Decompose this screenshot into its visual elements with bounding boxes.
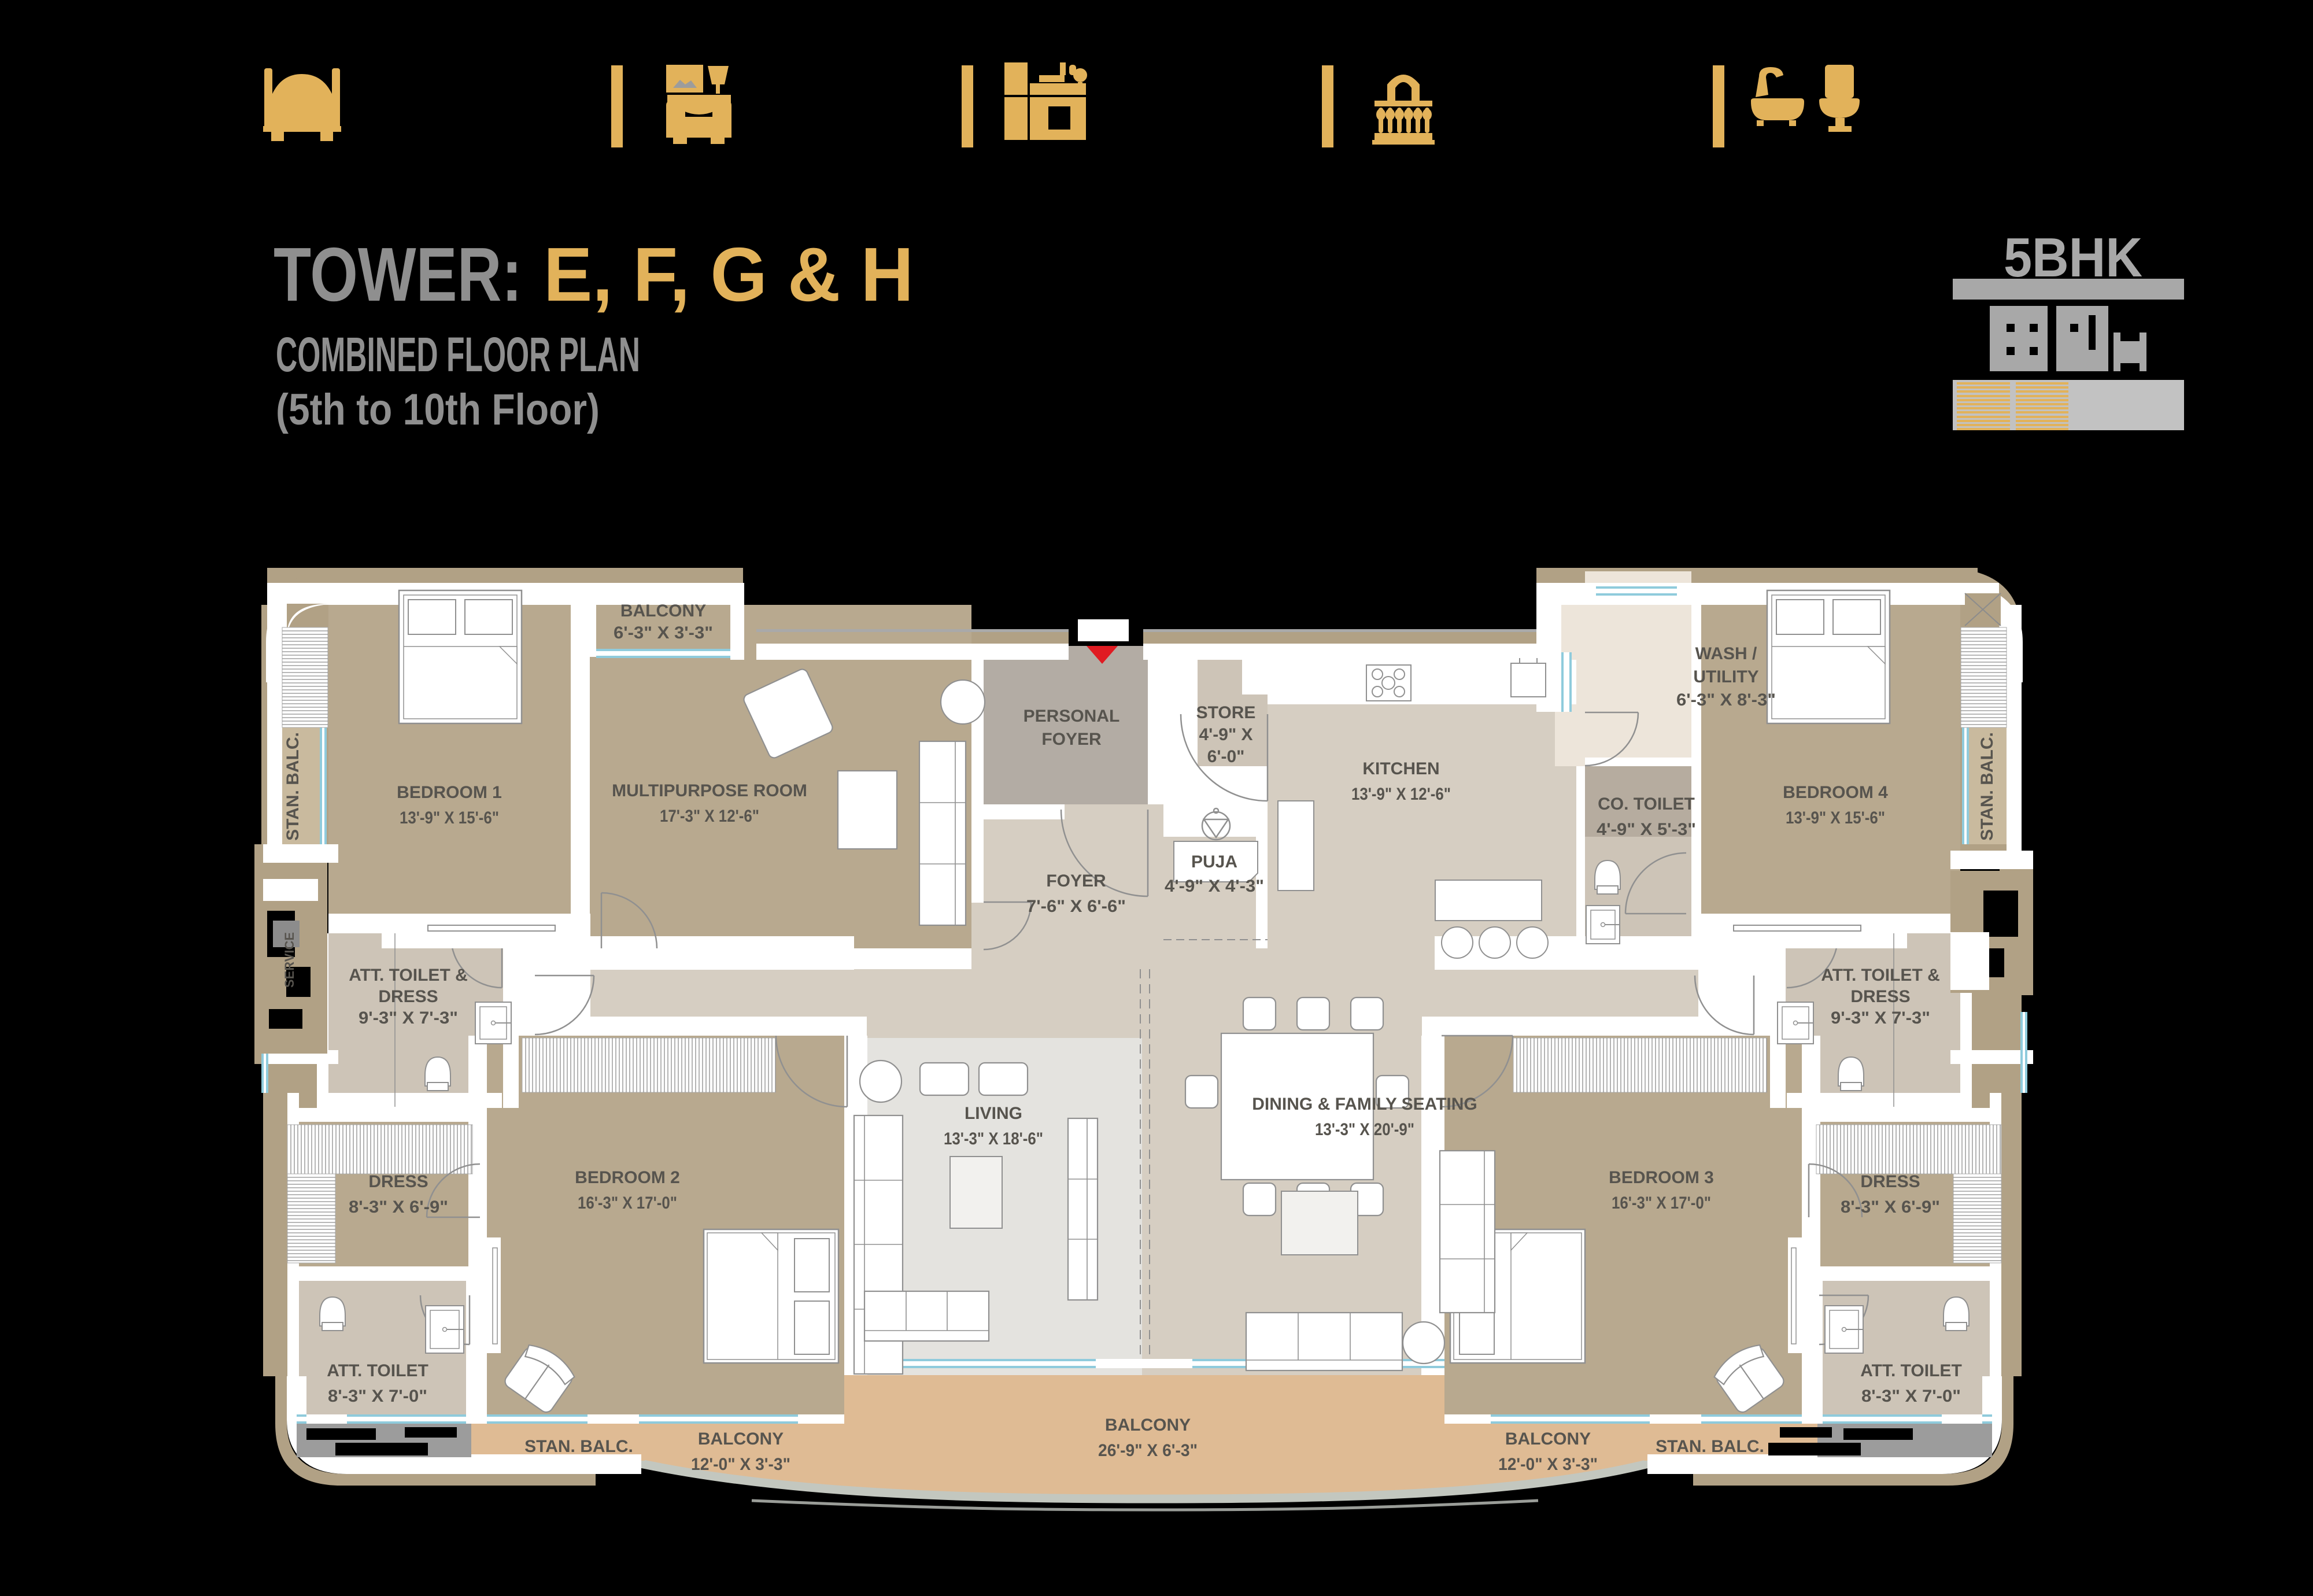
svg-text:COMBINED FLOOR PLAN: COMBINED FLOOR PLAN — [276, 327, 640, 382]
svg-text:DRESS: DRESS — [378, 987, 438, 1006]
svg-text:13'-9" X 12'-6": 13'-9" X 12'-6" — [1351, 785, 1451, 804]
svg-text:6'-3" X 8'-3": 6'-3" X 8'-3" — [1676, 690, 1776, 710]
svg-text:9'-3" X 7'-3": 9'-3" X 7'-3" — [359, 1008, 458, 1028]
svg-text:BALCONY: BALCONY — [620, 601, 706, 620]
svg-text:PERSONAL: PERSONAL — [1024, 707, 1120, 726]
svg-text:STAN. BALC.: STAN. BALC. — [283, 732, 302, 841]
svg-text:8'-3" X 6'-9": 8'-3" X 6'-9" — [1841, 1198, 1940, 1217]
svg-text:BEDROOM 2: BEDROOM 2 — [575, 1168, 680, 1187]
svg-text:12'-0" X 3'-3": 12'-0" X 3'-3" — [1498, 1455, 1598, 1474]
svg-text:13'-3" X 20'-9": 13'-3" X 20'-9" — [1315, 1120, 1414, 1139]
svg-text:STAN. BALC.: STAN. BALC. — [1978, 732, 1997, 841]
svg-text:12'-0" X 3'-3": 12'-0" X 3'-3" — [691, 1455, 790, 1474]
svg-text:4'-9" X 4'-3": 4'-9" X 4'-3" — [1165, 877, 1264, 896]
svg-text:BALCONY: BALCONY — [1505, 1429, 1591, 1449]
svg-text:BEDROOM 1: BEDROOM 1 — [397, 783, 502, 802]
svg-text:UTILITY: UTILITY — [1693, 667, 1758, 686]
svg-text:CO. TOILET: CO. TOILET — [1598, 795, 1695, 814]
svg-text:PUJA: PUJA — [1191, 852, 1237, 871]
svg-text:FOYER: FOYER — [1046, 871, 1106, 891]
svg-text:7'-6" X 6'-6": 7'-6" X 6'-6" — [1026, 897, 1126, 916]
svg-text:8'-3" X 6'-9": 8'-3" X 6'-9" — [349, 1198, 448, 1217]
svg-text:8'-3" X 7'-0": 8'-3" X 7'-0" — [1861, 1387, 1961, 1406]
svg-text:BEDROOM 4: BEDROOM 4 — [1783, 783, 1888, 802]
svg-text:13'-3" X 18'-6": 13'-3" X 18'-6" — [944, 1129, 1043, 1148]
svg-text:13'-9" X 15'-6": 13'-9" X 15'-6" — [1786, 808, 1885, 827]
svg-text:WASH /: WASH / — [1695, 644, 1757, 663]
svg-text:ATT. TOILET &: ATT. TOILET & — [349, 966, 468, 985]
svg-text:STAN. BALC.: STAN. BALC. — [1656, 1437, 1764, 1456]
svg-text:E, F, G & H: E, F, G & H — [544, 232, 914, 317]
svg-text:(5th to 10th Floor): (5th to 10th Floor) — [276, 385, 600, 434]
svg-text:13'-9" X 15'-6": 13'-9" X 15'-6" — [400, 808, 499, 827]
svg-text:16'-3" X 17'-0": 16'-3" X 17'-0" — [578, 1194, 677, 1213]
svg-text:26'-9" X 6'-3": 26'-9" X 6'-3" — [1098, 1441, 1198, 1460]
svg-text:6'-3" X 3'-3": 6'-3" X 3'-3" — [614, 623, 713, 642]
svg-text:16'-3" X 17'-0": 16'-3" X 17'-0" — [1612, 1194, 1711, 1213]
svg-text:6'-0": 6'-0" — [1207, 747, 1245, 766]
svg-text:SERVICE: SERVICE — [282, 932, 297, 988]
svg-text:TOWER:: TOWER: — [274, 232, 522, 317]
svg-text:BALCONY: BALCONY — [1105, 1416, 1191, 1435]
svg-text:DINING & FAMILY SEATING: DINING & FAMILY SEATING — [1252, 1095, 1477, 1114]
svg-text:9'-3" X 7'-3": 9'-3" X 7'-3" — [1831, 1008, 1930, 1028]
svg-text:ATT. TOILET: ATT. TOILET — [327, 1361, 428, 1380]
svg-text:17'-3" X 12'-6": 17'-3" X 12'-6" — [660, 807, 759, 826]
svg-text:ATT. TOILET: ATT. TOILET — [1860, 1361, 1962, 1380]
svg-text:BEDROOM 3: BEDROOM 3 — [1609, 1168, 1714, 1187]
svg-text:STAN. BALC.: STAN. BALC. — [524, 1437, 633, 1456]
svg-text:DRESS: DRESS — [368, 1172, 428, 1191]
svg-text:BALCONY: BALCONY — [698, 1429, 784, 1449]
svg-text:4'-9" X 5'-3": 4'-9" X 5'-3" — [1597, 820, 1696, 839]
svg-text:4'-9" X: 4'-9" X — [1199, 725, 1252, 744]
svg-text:ATT. TOILET &: ATT. TOILET & — [1821, 966, 1940, 985]
svg-text:MULTIPURPOSE ROOM: MULTIPURPOSE ROOM — [612, 781, 807, 800]
svg-text:STORE: STORE — [1196, 703, 1256, 722]
svg-text:8'-3" X 7'-0": 8'-3" X 7'-0" — [328, 1387, 427, 1406]
svg-text:DRESS: DRESS — [1860, 1172, 1920, 1191]
svg-text:DRESS: DRESS — [1850, 987, 1910, 1006]
svg-text:KITCHEN: KITCHEN — [1362, 759, 1439, 778]
svg-text:LIVING: LIVING — [965, 1104, 1022, 1123]
svg-text:FOYER: FOYER — [1041, 730, 1102, 749]
